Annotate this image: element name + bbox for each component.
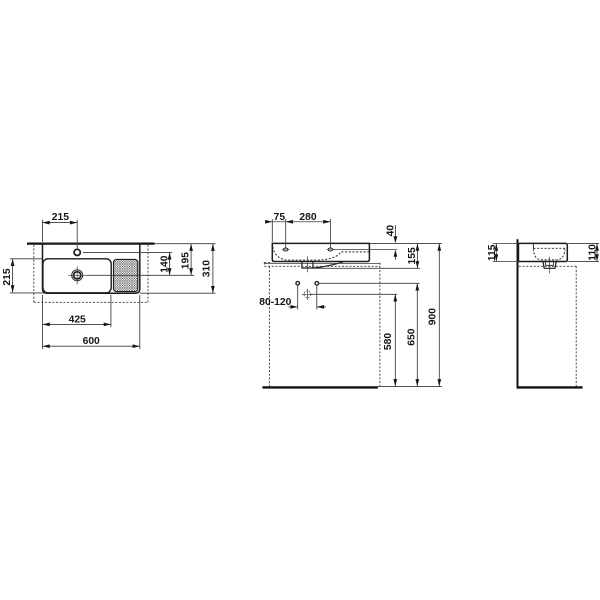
- svg-text:215: 215: [52, 212, 69, 223]
- svg-text:600: 600: [83, 336, 100, 347]
- svg-text:280: 280: [299, 212, 316, 223]
- svg-text:650: 650: [407, 328, 418, 345]
- svg-text:310: 310: [202, 260, 213, 277]
- svg-text:215: 215: [2, 268, 13, 285]
- svg-text:425: 425: [69, 314, 86, 325]
- svg-text:110: 110: [588, 244, 599, 261]
- svg-text:75: 75: [274, 212, 286, 223]
- svg-text:580: 580: [383, 333, 394, 350]
- svg-text:115: 115: [487, 244, 498, 261]
- svg-text:40: 40: [385, 225, 396, 237]
- svg-text:80-120: 80-120: [259, 297, 291, 308]
- svg-text:900: 900: [428, 308, 439, 325]
- svg-text:140: 140: [159, 255, 170, 272]
- svg-text:195: 195: [181, 252, 192, 269]
- svg-text:155: 155: [407, 247, 418, 264]
